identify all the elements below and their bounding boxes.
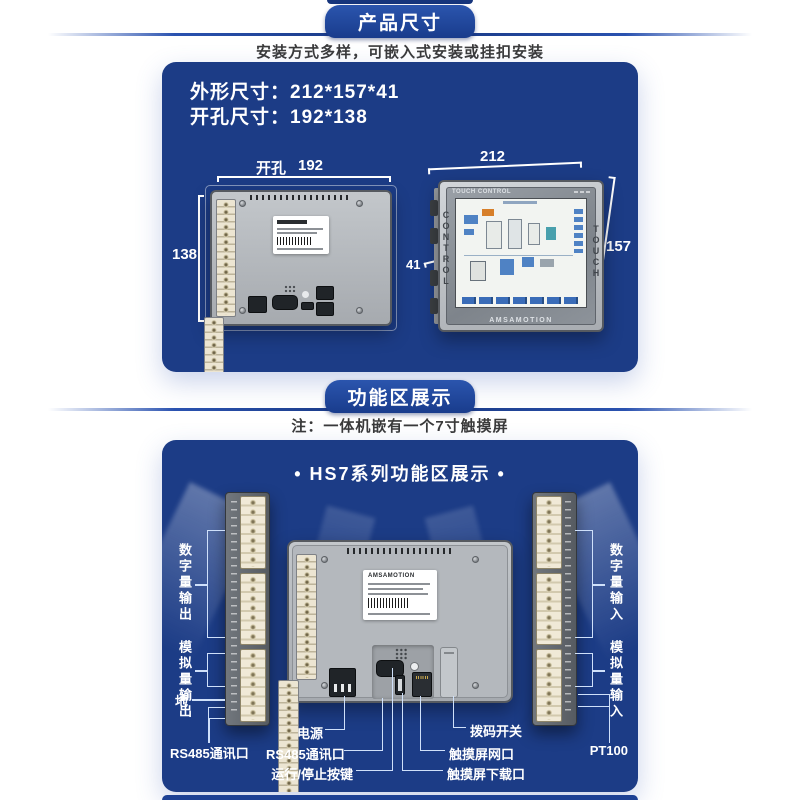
side-connector-tab xyxy=(430,270,438,286)
outline-size-text: 外形尺寸：212*157*41 xyxy=(190,80,399,105)
scada-block xyxy=(528,223,540,245)
bezel-right-text: TOUCH xyxy=(591,224,601,279)
speaker-grille xyxy=(284,285,296,293)
rs485-line xyxy=(208,719,210,743)
label-hmi-ethernet: 触摸屏网口 xyxy=(449,744,514,763)
corner-screw xyxy=(472,556,479,563)
usb-port xyxy=(301,302,314,310)
power-callout-line xyxy=(325,696,345,730)
power-connector xyxy=(248,296,267,313)
power-pins xyxy=(334,684,351,692)
analog-output-bracket xyxy=(207,653,225,687)
cutout-height-value: 138 xyxy=(172,246,197,263)
ethernet-pins xyxy=(416,676,428,679)
terminal-block xyxy=(240,496,266,569)
pt100-line xyxy=(609,707,611,743)
sticker-line xyxy=(368,588,423,590)
corner-screw xyxy=(321,682,328,689)
label-run-stop: 运行/停止按键 xyxy=(247,764,353,783)
device-front-view: TOUCH CONTROL CONTROL TOUCH AMSAMOTION xyxy=(438,180,604,332)
label-dip-switch: 拨码开关 xyxy=(470,721,522,740)
scada-block xyxy=(486,221,502,249)
pin-labels xyxy=(231,501,237,717)
power-connector xyxy=(329,668,356,697)
run-stop-button xyxy=(302,291,309,298)
scada-block xyxy=(508,219,522,249)
barcode xyxy=(277,237,311,245)
scada-sidebar xyxy=(574,209,583,253)
sticker-brand-text: AMSAMOTION xyxy=(368,573,415,579)
label-rs485-left: RS485通讯口 xyxy=(170,743,249,762)
ethernet-port xyxy=(316,302,334,316)
corner-screw xyxy=(356,200,363,207)
section-product-size-ribbon: 产品尺寸 xyxy=(325,5,475,38)
digital-input-bracket xyxy=(575,530,593,638)
front-width-value: 212 xyxy=(480,148,505,165)
label-power: 电源 xyxy=(283,723,323,742)
digital-output-bracket xyxy=(207,530,225,638)
corner-screw xyxy=(321,556,328,563)
label-ground: 地 xyxy=(175,691,188,710)
label-analog-input: 模拟量输入 xyxy=(608,640,623,720)
terminal-block xyxy=(536,496,562,569)
run-stop-button xyxy=(410,662,419,671)
analog-input-bracket xyxy=(575,653,593,687)
vga-port xyxy=(272,295,298,310)
dip-switch-cover xyxy=(440,647,458,698)
terminal-block xyxy=(536,573,562,646)
vent-grille xyxy=(347,548,453,554)
dip-callout-line xyxy=(453,696,466,728)
terminal-column-right xyxy=(204,317,224,372)
usb-tongue xyxy=(398,679,402,691)
label-rs485-bottom: RS485通讯口 xyxy=(266,744,341,763)
terminal-segments xyxy=(240,496,266,722)
next-section-remnant xyxy=(162,795,638,800)
corner-screw xyxy=(239,200,246,207)
front-depth-value: 41 xyxy=(406,257,420,272)
product-size-panel: 外形尺寸：212*157*41 开孔尺寸：192*138 开孔 192 138 … xyxy=(162,62,638,372)
cutout-width-bracket xyxy=(217,176,391,182)
terminal-column-left xyxy=(296,554,317,680)
vent-grille xyxy=(250,195,352,200)
sticker-brand-bar xyxy=(277,220,307,224)
scada-line xyxy=(464,255,573,256)
pin-labels xyxy=(565,501,571,717)
side-connector-tab xyxy=(430,200,438,216)
cover-notch xyxy=(444,652,454,654)
pt100-bracket xyxy=(578,694,610,707)
sticker-line xyxy=(368,613,430,615)
scada-block xyxy=(546,227,556,240)
ground-line xyxy=(192,699,225,701)
barcode xyxy=(368,598,410,608)
screen-header-text: TOUCH CONTROL xyxy=(452,189,511,195)
cutout-height-bracket xyxy=(198,195,204,322)
sticker-line xyxy=(368,583,430,585)
scada-title xyxy=(503,201,537,204)
terminal-strip-left-zoom xyxy=(225,492,270,726)
panel-title: • HS7系列功能区展示 • xyxy=(162,460,638,486)
scada-block xyxy=(470,261,486,281)
speaker-grille xyxy=(395,648,408,660)
label-hmi-download: 触摸屏下载口 xyxy=(447,764,525,783)
cutout-width-value: 192 xyxy=(298,157,323,174)
corner-screw xyxy=(472,682,479,689)
label-digital-input: 数字量输入 xyxy=(608,543,623,623)
label-digital-output: 数字量输出 xyxy=(177,543,192,623)
corner-screw xyxy=(239,307,246,314)
function-zone-panel: • HS7系列功能区展示 • 数字量输出 模拟量输出 地 RS485通讯口 数字… xyxy=(162,440,638,792)
usb-port xyxy=(395,675,405,695)
brand-text: AMSAMOTION xyxy=(438,317,604,324)
device-back-view-large: AMSAMOTION xyxy=(287,540,513,703)
sticker-line xyxy=(277,248,323,250)
terminal-segments xyxy=(536,496,562,722)
hmi-dl-callout-line xyxy=(402,693,443,771)
bezel-left-text: CONTROL xyxy=(441,210,451,287)
label-sticker xyxy=(273,216,329,254)
section-function-zone-ribbon: 功能区展示 xyxy=(325,380,475,413)
terminal-block xyxy=(240,573,266,646)
scada-block xyxy=(522,257,534,267)
run-stop-callout-line xyxy=(356,668,393,771)
scada-block xyxy=(464,229,474,235)
scada-block xyxy=(482,209,494,216)
terminal-block xyxy=(240,649,266,722)
device-back-view xyxy=(210,190,392,326)
sticker-line xyxy=(277,232,317,234)
side-connector-tab xyxy=(430,298,438,314)
scada-block xyxy=(500,259,514,275)
side-connector-tab xyxy=(430,228,438,244)
terminal-strip-right-zoom xyxy=(532,492,577,726)
section2-note: 注：一体机嵌有一个7寸触摸屏 xyxy=(0,415,800,436)
ribbon-title: 功能区展示 xyxy=(347,383,452,410)
label-pt100: PT100 xyxy=(590,743,628,758)
front-height-value: 157 xyxy=(606,238,631,255)
touch-screen xyxy=(455,198,587,308)
label-sticker: AMSAMOTION xyxy=(363,570,437,620)
cutout-size-text: 开孔尺寸：192*138 xyxy=(190,105,368,130)
scada-toolbar xyxy=(462,297,580,304)
ribbon-title: 产品尺寸 xyxy=(358,8,442,35)
corner-screw xyxy=(356,307,363,314)
ethernet-port xyxy=(316,286,334,300)
terminal-block xyxy=(536,649,562,722)
terminal-column-left xyxy=(216,199,236,317)
scada-block xyxy=(540,259,554,267)
previous-section-tab-remnant xyxy=(327,0,473,4)
sticker-line xyxy=(277,228,323,230)
header-dots xyxy=(574,191,590,193)
section1-subtitle: 安装方式多样，可嵌入式安装或挂扣安装 xyxy=(0,41,800,62)
cutout-label: 开孔 xyxy=(256,157,286,178)
rs485-bracket xyxy=(208,707,225,719)
scada-block xyxy=(464,215,478,224)
sticker-line xyxy=(368,593,428,595)
